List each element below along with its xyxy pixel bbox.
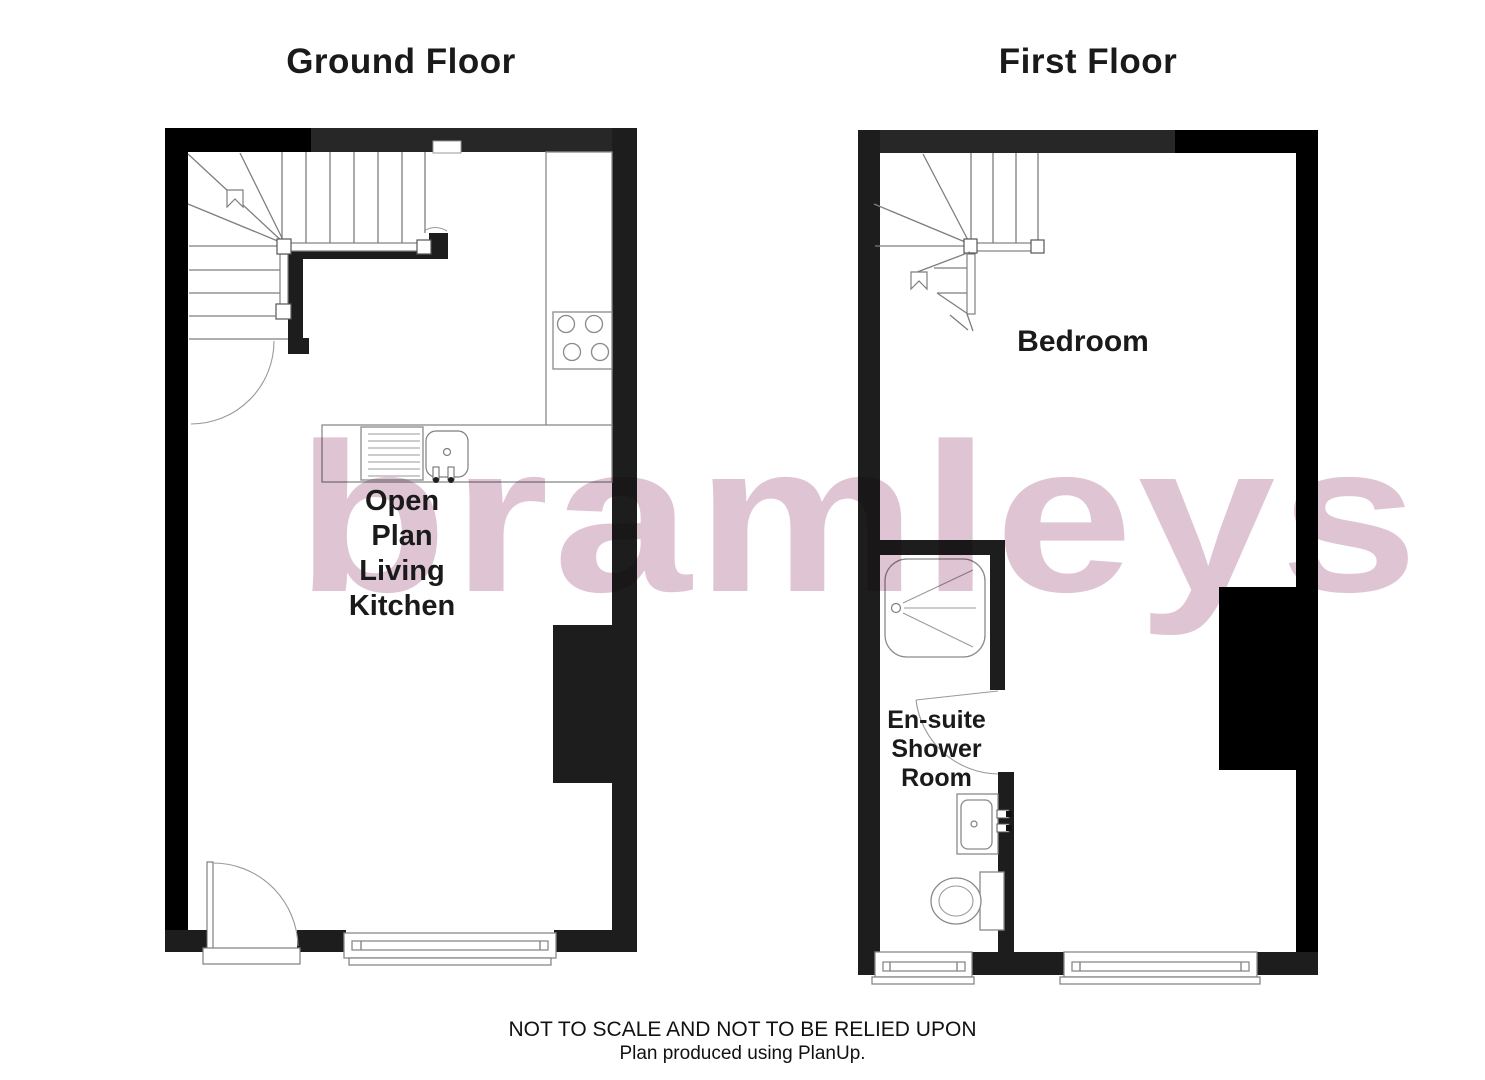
window-sill [872, 977, 974, 984]
newel-post [964, 239, 977, 253]
window-sill [349, 958, 551, 965]
plan-credit-text: Plan produced using PlanUp. [0, 1043, 1485, 1065]
first-floor-title: First Floor [858, 42, 1318, 82]
bedroom-window [1060, 952, 1260, 984]
door-threshold [203, 948, 300, 964]
disclaimer-text: NOT TO SCALE AND NOT TO BE RELIED UPON [0, 1018, 1485, 1042]
newel-post [1031, 240, 1044, 253]
room-label-open-plan-living-kitchen: Open Plan Living Kitchen [302, 484, 502, 624]
handrail [280, 254, 288, 306]
newel-post [417, 240, 431, 254]
floorplan-page: bramleys Ground Floor First Floor Open P… [0, 0, 1485, 1080]
room-label-bedroom: Bedroom [958, 325, 1208, 359]
toilet-cistern [980, 872, 1004, 930]
door-leaf [207, 862, 213, 948]
ground-floor-window [344, 933, 556, 965]
room-label-ensuite-shower-room: En-suite Shower Room [859, 706, 1014, 793]
wall-recess [433, 141, 461, 153]
window-sill [1060, 977, 1260, 984]
newel-post [276, 304, 291, 319]
handrail [282, 243, 426, 251]
hob [553, 312, 612, 369]
newel-post [277, 239, 291, 254]
handrail [971, 243, 1037, 251]
ground-floor-title: Ground Floor [165, 42, 637, 82]
handrail [967, 254, 975, 314]
tall-kitchen-unit [546, 152, 612, 426]
chimney-breast [553, 625, 637, 783]
ensuite-window [872, 952, 974, 984]
